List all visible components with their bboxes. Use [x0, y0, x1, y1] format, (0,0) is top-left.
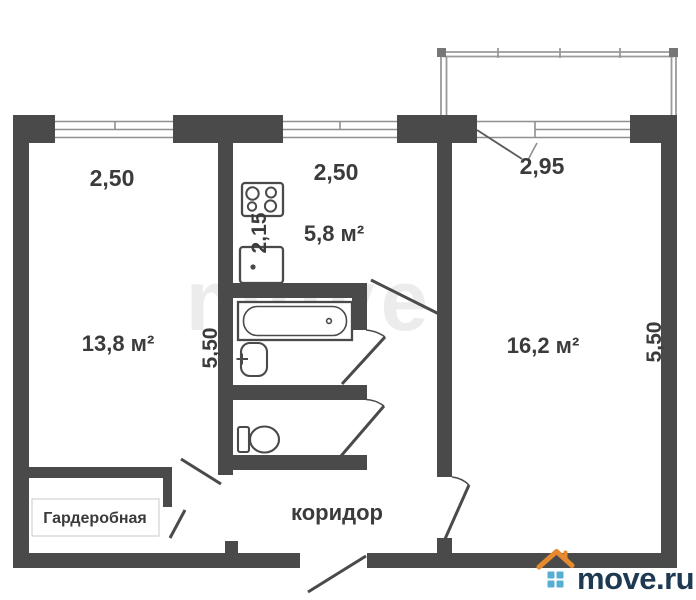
wardrobe-label: Гардеробная	[43, 510, 147, 527]
kitchen-area-label: 5,8 м²	[304, 221, 364, 246]
kitchen-window	[283, 122, 397, 138]
wardrobe-door-leaf	[170, 510, 185, 538]
floor-plan-page: move	[0, 0, 696, 600]
balcony-post	[437, 48, 446, 57]
balcony-post	[669, 48, 678, 57]
left-side-height-label: 5,50	[199, 328, 222, 369]
wardrobe-label-chip: Гардеробная	[32, 499, 159, 536]
kitchen-depth-label: 2,15	[248, 212, 271, 253]
kitchen-width-label: 2,50	[314, 159, 359, 185]
left-room-window	[55, 122, 173, 138]
right-room-area-label: 16,2 м²	[507, 333, 580, 358]
entrance-door-leaf	[308, 556, 366, 592]
left-room-door-leaf	[181, 459, 221, 484]
logo-text: move.ru	[577, 561, 694, 596]
toilet-icon	[238, 427, 279, 453]
left-room-width-label: 2,50	[90, 165, 135, 191]
balcony-railing	[437, 48, 678, 116]
corridor-label: коридор	[291, 500, 383, 525]
right-side-height-label: 5,50	[643, 322, 666, 363]
right-room-door-leaf	[445, 485, 469, 539]
floor-plan-drawing: move	[0, 0, 696, 600]
dimension-leader-right-room-width	[477, 130, 522, 159]
bathtub-icon	[238, 302, 352, 340]
right-room-width-label: 2,95	[520, 153, 565, 179]
stove-icon	[242, 183, 283, 216]
left-room-area-label: 13,8 м²	[82, 331, 155, 356]
washbasin-icon	[237, 343, 268, 376]
toilet-door-leaf	[341, 406, 384, 456]
